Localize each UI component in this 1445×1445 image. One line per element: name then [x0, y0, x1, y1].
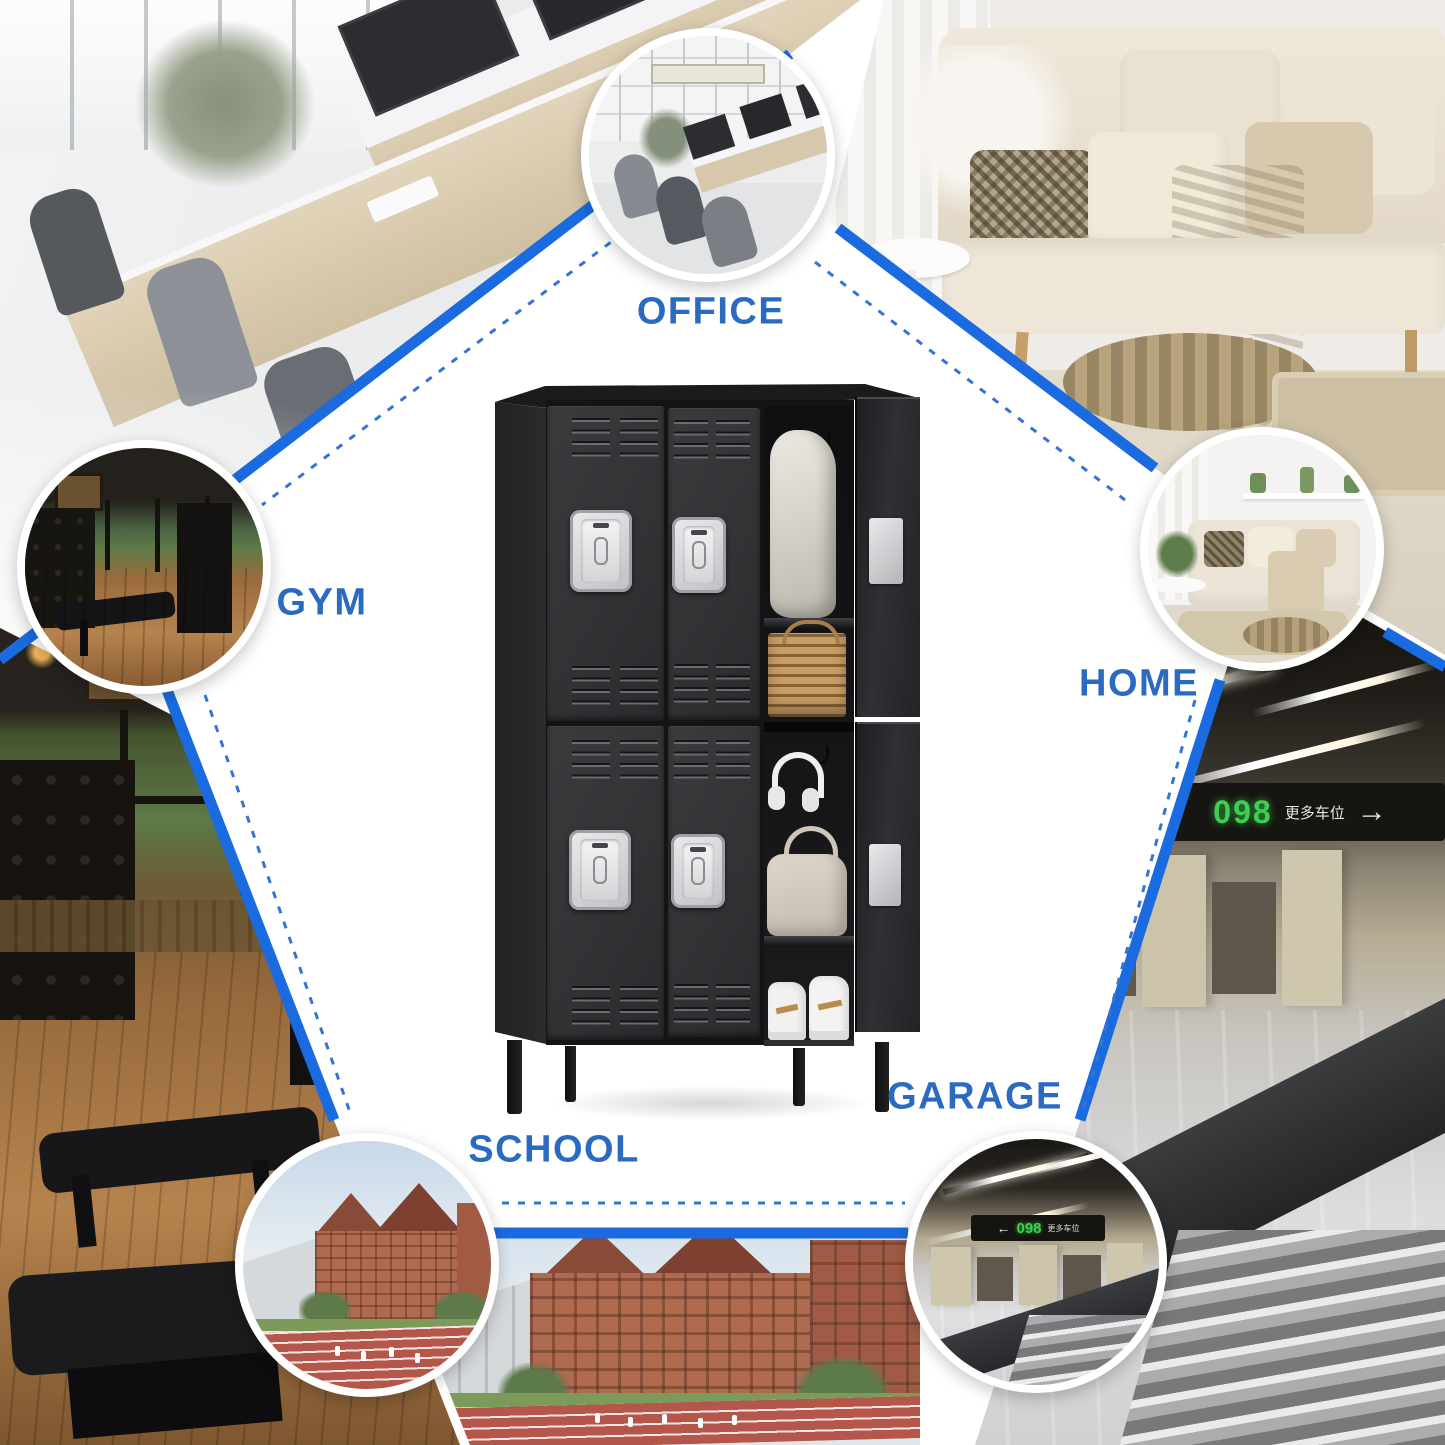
- mini-parking-sign: ← 098 更多车位: [971, 1215, 1105, 1241]
- garage-scene-circle: ← 098 更多车位: [905, 1131, 1167, 1393]
- label-office: OFFICE: [637, 291, 785, 334]
- label-home: HOME: [1079, 663, 1199, 706]
- locker-open-compartment: [764, 406, 854, 1040]
- locker-door-open: [855, 397, 920, 717]
- vent-slots: [620, 740, 658, 786]
- handle-plate: [580, 839, 620, 901]
- dashed-gym-school: [205, 695, 352, 1118]
- mini-runner: [361, 1351, 366, 1361]
- label-school: SCHOOL: [468, 1129, 640, 1172]
- handle-plate: [683, 526, 715, 584]
- vent-slots: [572, 418, 610, 464]
- locker-shelf: [764, 936, 854, 947]
- mini-runner: [415, 1353, 420, 1363]
- mini-runner: [335, 1346, 340, 1356]
- vent-slots: [620, 418, 658, 464]
- mini-stairs: [1008, 1315, 1159, 1385]
- hanging-coat: [770, 430, 836, 618]
- home-scene-circle: [1140, 427, 1384, 671]
- recessed-handle: [569, 830, 631, 910]
- door-latch-plate: [869, 518, 903, 584]
- locker-door-open: [855, 722, 920, 1032]
- mini-plant-left: [1156, 531, 1198, 577]
- vent-slots: [572, 666, 610, 712]
- mini-plant: [1300, 467, 1314, 493]
- vent-slots: [716, 984, 750, 1030]
- mini-track: [242, 1325, 492, 1394]
- locker-leg: [507, 1040, 522, 1114]
- edge-garage-top: [1385, 632, 1445, 667]
- product-usage-poster: 098 更多车位 →: [0, 0, 1445, 1445]
- mini-plant: [1250, 473, 1266, 493]
- label-garage: GARAGE: [887, 1076, 1063, 1119]
- handbag: [767, 854, 847, 936]
- vent-slots: [620, 986, 658, 1032]
- headphones-earcup: [768, 786, 785, 810]
- mini-opening: [977, 1257, 1013, 1301]
- mini-office-light: [651, 64, 765, 84]
- vent-slots: [716, 420, 750, 466]
- mini-sign-number: 098: [1016, 1220, 1041, 1237]
- storage-basket: [768, 633, 846, 717]
- locker-leg: [793, 1048, 805, 1106]
- metal-locker-product: [495, 384, 925, 1124]
- locker-leg: [565, 1046, 576, 1102]
- recessed-handle: [671, 834, 725, 908]
- mini-runner: [389, 1347, 394, 1357]
- vent-slots: [572, 986, 610, 1032]
- label-gym: GYM: [276, 582, 367, 625]
- handle-plate: [682, 843, 714, 899]
- mini-window-mullion: [105, 500, 110, 570]
- vent-slots: [674, 984, 708, 1030]
- compartment-divider: [764, 722, 854, 732]
- mini-pillar: [1019, 1245, 1057, 1305]
- mini-floor-planks: [25, 568, 263, 686]
- vent-slots: [674, 740, 708, 786]
- vent-slots: [572, 740, 610, 786]
- recessed-handle: [570, 510, 632, 592]
- vent-slots: [716, 664, 750, 710]
- locker-front: [546, 400, 854, 1045]
- mini-side-table: [1148, 577, 1206, 593]
- vent-slots: [674, 664, 708, 710]
- compartment-floor: [764, 1040, 854, 1046]
- edge-gym-school: [167, 690, 334, 1120]
- mini-plant: [1344, 475, 1360, 493]
- handle-plate: [581, 519, 621, 583]
- mini-pillar: [931, 1247, 971, 1305]
- mini-window-mullion: [155, 498, 160, 572]
- mini-shelf: [1243, 493, 1363, 499]
- recessed-handle: [672, 517, 726, 593]
- locker-side-panel: [495, 384, 546, 1046]
- school-scene-circle: [235, 1133, 499, 1397]
- mini-pouf: [1243, 617, 1329, 653]
- vent-slots: [716, 740, 750, 786]
- door-latch-plate: [869, 844, 901, 906]
- mini-gym-frame: [55, 473, 103, 511]
- vent-slots: [674, 420, 708, 466]
- mini-pillow-patterned: [1204, 531, 1244, 567]
- headphones-earcup: [802, 788, 819, 812]
- edge-home-garage: [1080, 680, 1220, 1120]
- office-scene-circle: [581, 28, 835, 282]
- vent-slots: [620, 666, 658, 712]
- mini-sign-caption: 更多车位: [1048, 1223, 1080, 1234]
- mini-sign-arrow-icon: ←: [996, 1221, 1010, 1235]
- gym-scene-circle: [17, 440, 271, 694]
